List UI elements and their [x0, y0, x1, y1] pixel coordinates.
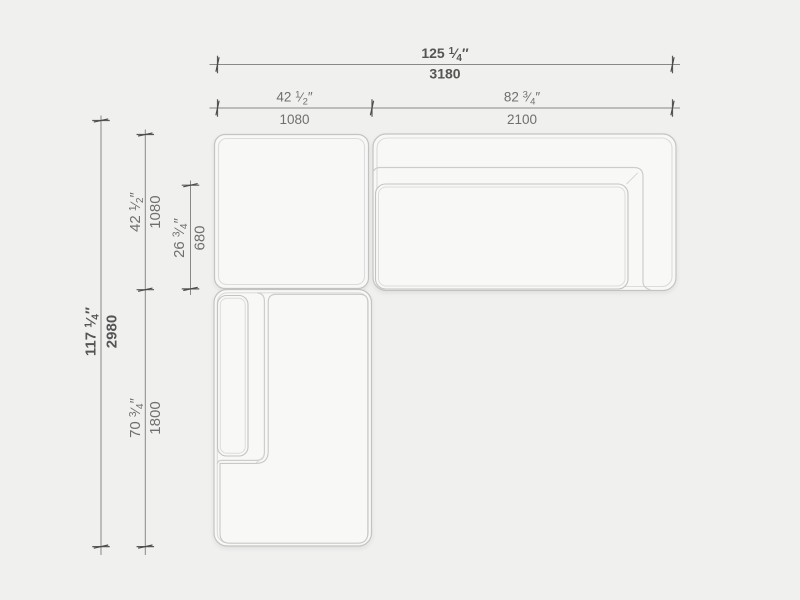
- svg-text:26 3⁄4″: 26 3⁄4″: [171, 217, 190, 258]
- svg-text:1800: 1800: [147, 401, 164, 434]
- svg-text:42 1⁄2″: 42 1⁄2″: [127, 191, 146, 232]
- svg-text:70 3⁄4″: 70 3⁄4″: [127, 397, 146, 438]
- svg-text:680: 680: [192, 225, 209, 250]
- svg-text:2100: 2100: [507, 112, 537, 127]
- svg-text:1080: 1080: [147, 195, 164, 228]
- svg-text:2980: 2980: [103, 315, 120, 348]
- svg-text:1080: 1080: [279, 112, 309, 127]
- svg-text:117 1⁄4″: 117 1⁄4″: [83, 307, 102, 356]
- svg-text:3180: 3180: [429, 66, 460, 82]
